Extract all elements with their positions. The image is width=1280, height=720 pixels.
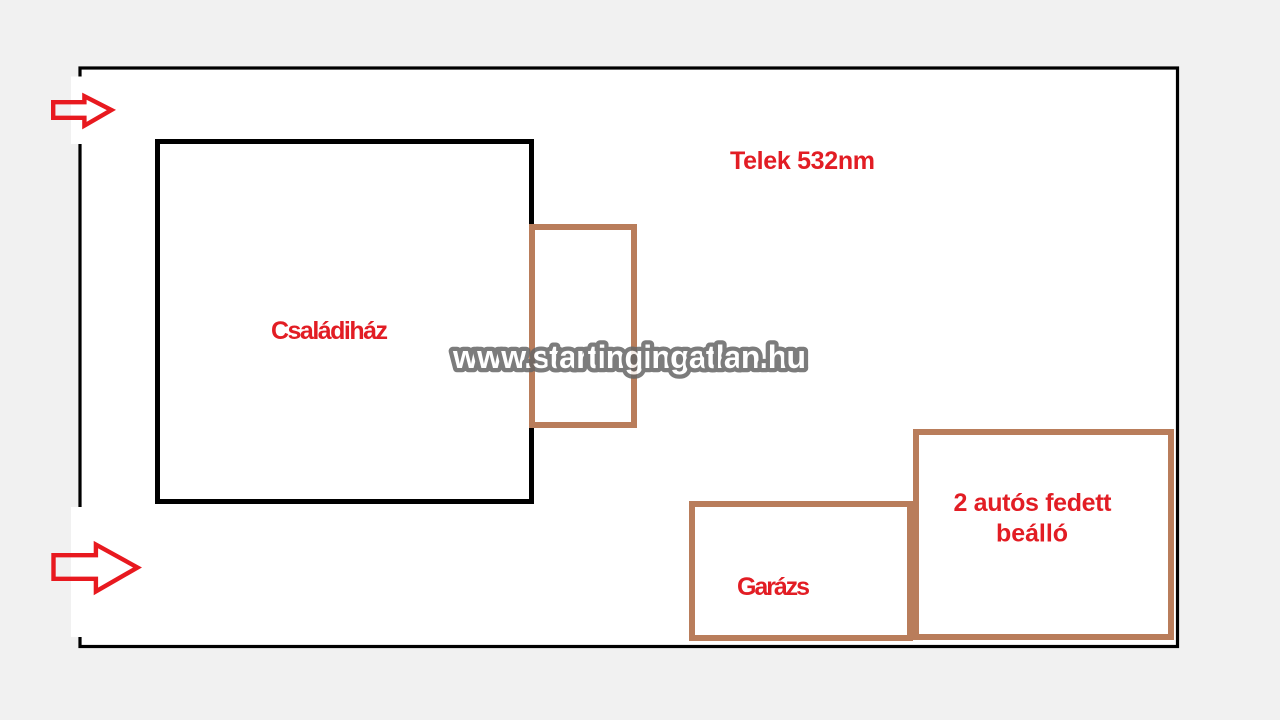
svg-text:www.startingingatlan.hu: www.startingingatlan.hu — [452, 339, 806, 375]
svg-text:Családiház: Családiház — [271, 317, 388, 345]
svg-text:Garázs: Garázs — [737, 573, 810, 601]
svg-text:beálló: beálló — [996, 520, 1068, 548]
svg-text:Telek 532nm: Telek 532nm — [730, 147, 875, 175]
svg-text:2 autós fedett: 2 autós fedett — [954, 489, 1113, 517]
